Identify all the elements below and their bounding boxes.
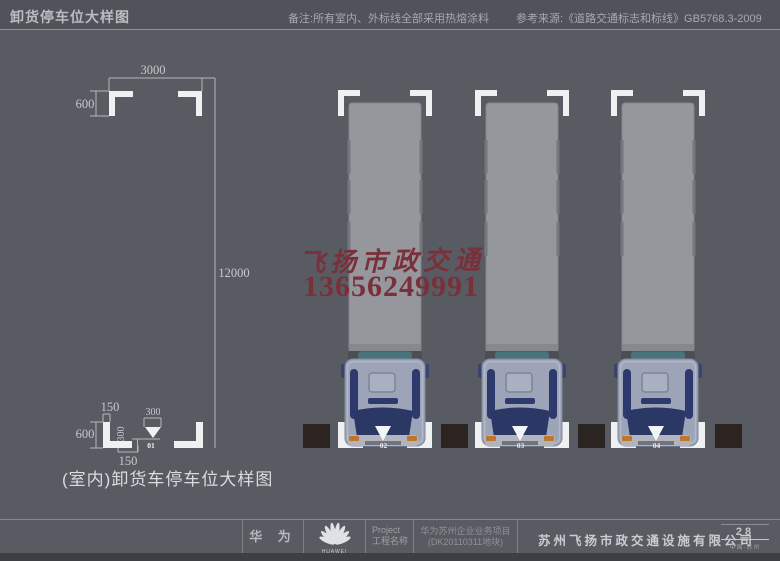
truck-top-view (614, 103, 702, 446)
sheet-title: 卸货停车位大样图 (10, 7, 130, 27)
bottom-strip (0, 553, 780, 561)
footer-title-block: 华 为 HUAWEI Project 工程名称 华为苏州企业业 (0, 519, 780, 553)
project-label-zh: 工程名称 (372, 536, 413, 547)
project-name-line2: (DK20110311地块) (414, 537, 517, 548)
column-block (303, 424, 330, 448)
reference-text: 参考来源:《道路交通标志和标线》GB5768.3-2009 (516, 10, 762, 26)
corner-markings (103, 91, 203, 448)
dimension-lines (90, 78, 215, 452)
column-block (578, 424, 605, 448)
dim-stripe-width-top: 150 (101, 400, 120, 414)
corner-bracket-top-right (178, 91, 202, 116)
column-block (441, 424, 468, 448)
brand-text: 华 为 (242, 520, 303, 554)
huawei-logo-icon (318, 522, 352, 546)
header-bar: 卸货停车位大样图 备注:所有室内、外标线全部采用热熔涂料 参考来源:《道路交通标… (0, 0, 780, 30)
dim-width: 3000 (141, 63, 166, 77)
project-label: Project 工程名称 (365, 520, 413, 554)
column-block (715, 424, 742, 448)
project-name-line1: 华为苏州企业业务项目 (414, 526, 517, 537)
drawing-sheet: 卸货停车位大样图 备注:所有室内、外标线全部采用热熔涂料 参考来源:《道路交通标… (0, 0, 780, 561)
location-text: 中国·苏州 (721, 542, 769, 551)
space-label: 03 (516, 441, 524, 450)
watermark-phone: 13656249991 (303, 270, 479, 304)
drawing-caption: (室内)卸货车停车位大样图 (62, 465, 273, 490)
dimension-labels: 3000 600 12000 150 300 300 600 150 (76, 63, 250, 468)
dim-arrow-width: 300 (146, 407, 161, 418)
project-name: 华为苏州企业业务项目 (DK20110311地块) (413, 520, 517, 554)
entrance-arrow (145, 427, 161, 438)
space-label: 02 (380, 441, 388, 450)
dim-arrow-height: 300 (116, 427, 127, 442)
entrance-label: 01 (147, 441, 155, 450)
parking-space-04: 04 (608, 85, 708, 455)
logo-cell: HUAWEI (303, 520, 365, 554)
space-label: 04 (653, 441, 661, 450)
parking-space-detail-drawing: 3000 600 12000 150 300 300 600 150 01 (60, 55, 280, 495)
page-number: 28 (721, 524, 769, 540)
note-text: 备注:所有室内、外标线全部采用热熔涂料 (288, 10, 489, 26)
company-cell: 苏州飞扬市政交通设施有限公司 28 中国·苏州 (517, 520, 780, 554)
dim-corner-depth: 600 (76, 97, 95, 111)
dim-length: 12000 (218, 266, 249, 280)
dim-corner-depth-bottom: 600 (76, 427, 95, 441)
project-label-en: Project (372, 525, 413, 536)
corner-bracket-top-left (109, 91, 133, 116)
page-block: 28 中国·苏州 (721, 524, 769, 551)
corner-bracket-bottom-right (174, 422, 203, 448)
